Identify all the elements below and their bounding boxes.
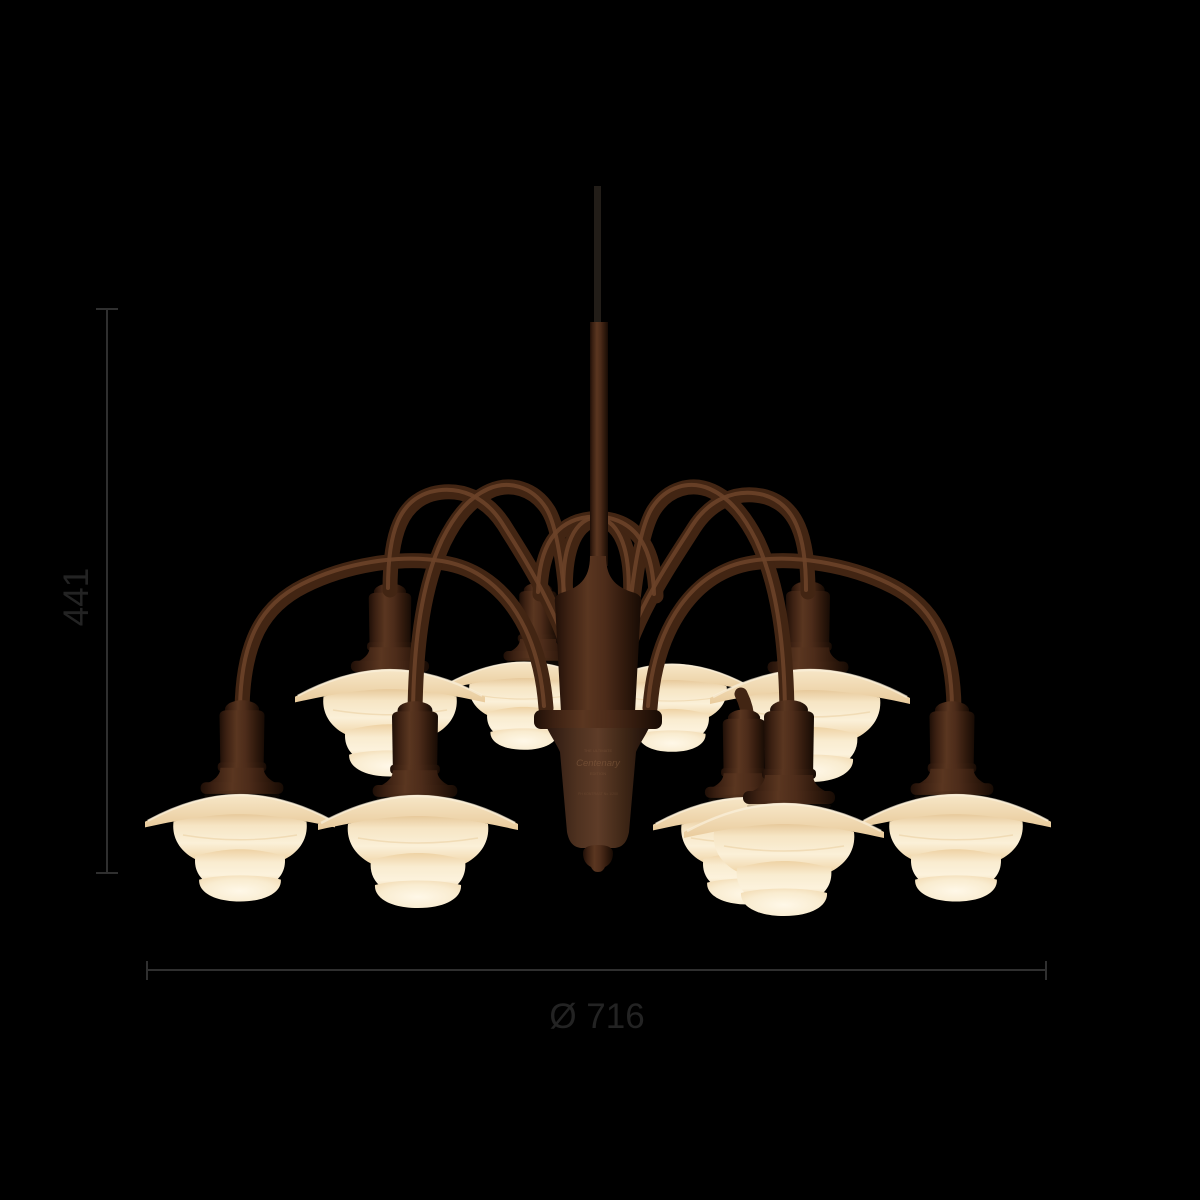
svg-text:EDITION: EDITION: [590, 771, 606, 776]
svg-text:Centenary: Centenary: [576, 758, 621, 769]
svg-text:Ø 716: Ø 716: [549, 997, 644, 1036]
svg-text:441: 441: [57, 568, 96, 626]
svg-text:THE ULTIMATE: THE ULTIMATE: [584, 748, 613, 753]
svg-text:PH KONTRAST No 1/200: PH KONTRAST No 1/200: [578, 792, 618, 796]
